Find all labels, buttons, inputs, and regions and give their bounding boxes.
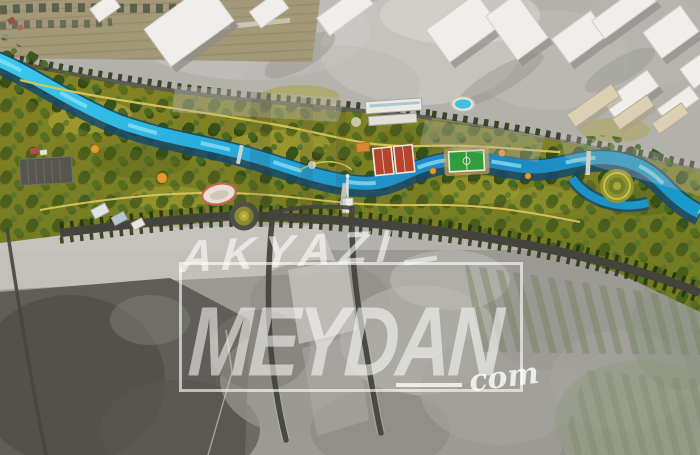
swimming-pool: [451, 97, 475, 112]
parking-lot: [19, 157, 72, 186]
masterplan-scene: [0, 0, 700, 455]
orange-pavilion: [356, 142, 370, 152]
planned-plaza: [288, 259, 357, 344]
aerial-masterplan-image: AKYAZI MEYDAN com: [0, 0, 700, 455]
